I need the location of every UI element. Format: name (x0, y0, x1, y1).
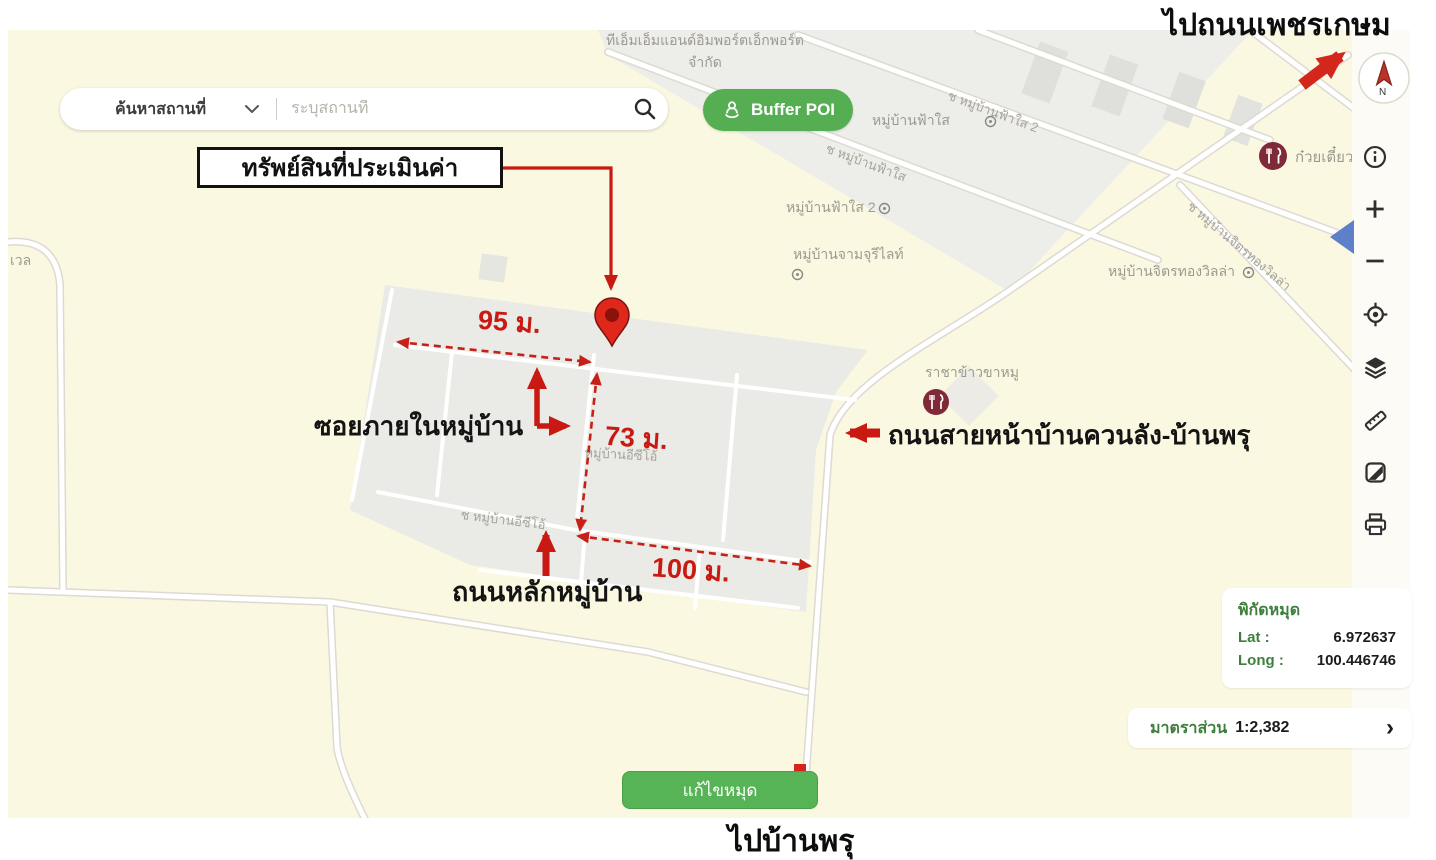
pin-coordinates-panel: พิกัดหมุด Lat : 6.972637 Long : 100.4467… (1222, 588, 1412, 688)
app-window: ทีเอ็มเอ็มแอนด์อิมพอร์ตเอ็กพอร์ต จำกัด ห… (0, 0, 1436, 860)
person-pin-icon (721, 99, 743, 121)
poi-circle-icon (1242, 266, 1255, 279)
map-label-village-jittrathong: หมู่บ้านจิตรทองวิลล่า (1108, 261, 1235, 283)
search-input[interactable] (291, 100, 622, 118)
print-button[interactable] (1360, 509, 1390, 539)
search-category-label: ค้นหาสถานที่ (115, 97, 206, 122)
scale-label: มาตราส่วน (1150, 716, 1227, 741)
compass-n-label: N (1379, 87, 1386, 98)
map-label-partial-left: เวล (10, 250, 31, 272)
scale-expand-chevron[interactable]: › (1386, 718, 1394, 738)
map-label-village-jamjuree: หมู่บ้านจามจุรีไลท์ (793, 244, 904, 266)
label-to-phetkasem: ไปถนนเพชรเกษม (1163, 2, 1391, 49)
panel-collapse-handle[interactable] (1328, 218, 1356, 256)
label-to-banphru: ไปบ้านพรุ (728, 818, 854, 860)
edit-pin-button[interactable]: แก้ไขหมุด (622, 771, 818, 809)
scale-value: 1:2,382 (1235, 719, 1386, 737)
zoom-in-icon (1362, 196, 1388, 222)
appraised-property-callout: ทรัพย์สินที่ประเมินค่า (197, 147, 503, 188)
lat-label: Lat : (1238, 629, 1270, 646)
search-icon (633, 97, 657, 121)
layers-button[interactable] (1360, 352, 1390, 382)
label-73m: 73 ม. (604, 414, 670, 461)
coords-panel-title: พิกัดหมุด (1238, 598, 1396, 623)
map-label-village-fasai: หมู่บ้านฟ้าใส (872, 110, 950, 132)
buffer-poi-label: Buffer POI (751, 100, 835, 120)
search-category-dropdown[interactable]: ค้นหาสถานที่ (60, 97, 260, 122)
long-row: Long : 100.446746 (1238, 652, 1396, 669)
locate-button[interactable] (1360, 299, 1390, 329)
measure-button[interactable] (1360, 405, 1390, 435)
map-label-company: ทีเอ็มเอ็มแอนด์อิมพอร์ตเอ็กพอร์ต (600, 30, 810, 52)
label-internal-soi: ซอยภายในหมู่บ้าน (314, 406, 523, 447)
divider (276, 98, 277, 120)
label-100m: 100 ม. (651, 545, 732, 593)
restaurant-icon (1258, 141, 1288, 171)
poi-circle-icon (878, 202, 891, 215)
compass-control[interactable]: N (1358, 52, 1410, 104)
long-value: 100.446746 (1317, 652, 1396, 669)
map-label-company-2: จำกัด (600, 52, 810, 74)
label-95m: 95 ม. (477, 298, 543, 345)
info-icon (1362, 144, 1388, 170)
building (478, 253, 507, 282)
search-button[interactable] (622, 88, 668, 130)
long-label: Long : (1238, 652, 1284, 669)
map-label-village-fasai2: หมู่บ้านฟ้าใส 2 (786, 197, 876, 219)
search-bar: ค้นหาสถานที่ (60, 88, 668, 130)
zoom-out-button[interactable] (1360, 246, 1390, 276)
chevron-left-icon (1330, 220, 1354, 254)
zoom-in-button[interactable] (1360, 194, 1390, 224)
label-front-road: ถนนสายหน้าบ้านควนลัง-บ้านพรุ (888, 415, 1250, 456)
map-label-restaurant-khamoo: ราชาข้าวขาหมู (925, 362, 1019, 384)
zoom-out-icon (1362, 248, 1388, 274)
lat-row: Lat : 6.972637 (1238, 629, 1396, 646)
measure-ruler-icon (1362, 407, 1389, 434)
label-village-main-road: ถนนหลักหมู่บ้าน (452, 570, 642, 613)
info-button[interactable] (1360, 142, 1390, 172)
restaurant-icon (922, 388, 950, 416)
basemap-icon (1362, 459, 1389, 486)
buffer-poi-button[interactable]: Buffer POI (703, 89, 853, 131)
scale-panel: มาตราส่วน 1:2,382 › (1128, 708, 1412, 748)
locate-icon (1362, 301, 1389, 328)
layers-icon (1362, 354, 1389, 381)
lat-value: 6.972637 (1333, 629, 1396, 646)
poi-circle-icon (791, 268, 804, 281)
basemap-button[interactable] (1360, 457, 1390, 487)
map-label-restaurant-noodle: ก๋วยเตี๋ยว (1295, 145, 1353, 169)
print-icon (1362, 511, 1389, 538)
poi-circle-icon (984, 115, 997, 128)
chevron-down-icon (244, 104, 260, 114)
